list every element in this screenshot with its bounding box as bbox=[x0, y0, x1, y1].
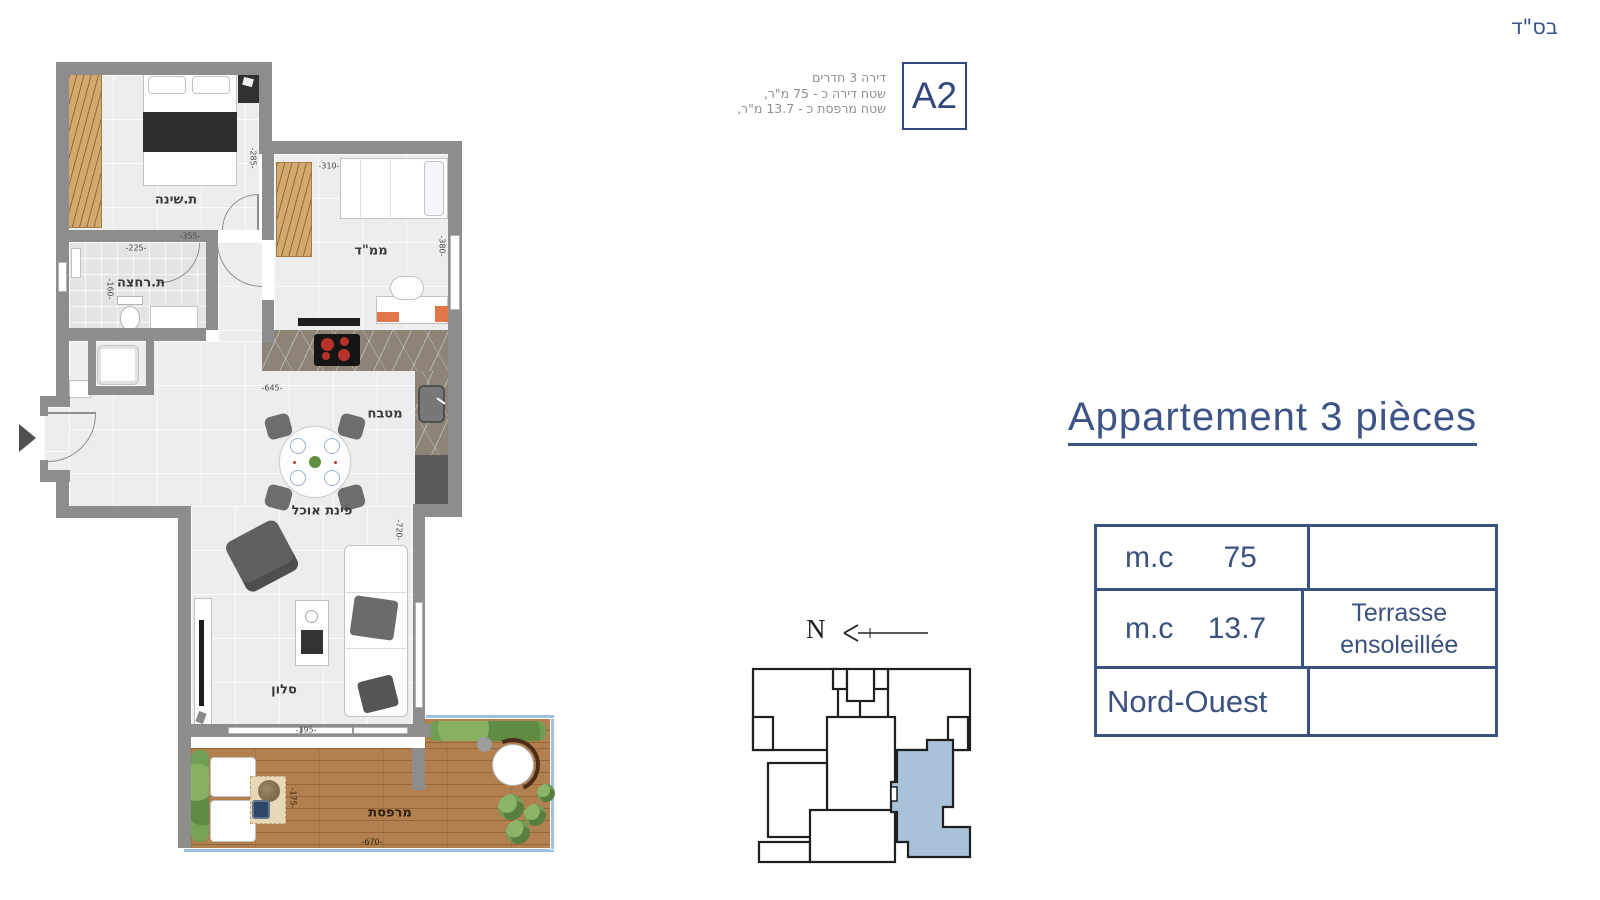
dim-bedroom-h: -285- bbox=[249, 147, 258, 168]
wall bbox=[56, 62, 69, 345]
table-cell-area: m.c 75 bbox=[1097, 527, 1310, 588]
bed-fold-line bbox=[360, 160, 361, 217]
table-row: Nord-Ouest bbox=[1097, 669, 1495, 734]
wall bbox=[448, 343, 462, 504]
window-sliding-door bbox=[228, 727, 408, 734]
table-cell-terrace-note: Terrasse ensoleillée bbox=[1304, 591, 1496, 666]
dim-bath-h: -160- bbox=[106, 278, 115, 299]
room-label-mamad: ממ"ד bbox=[354, 244, 387, 259]
window-tick bbox=[352, 727, 354, 734]
outdoor-stool-icon bbox=[252, 800, 270, 819]
planter-left-icon bbox=[191, 750, 209, 842]
window bbox=[415, 602, 423, 708]
terrace-value: 13.7 bbox=[1173, 612, 1300, 646]
dim-bedroom-w: -355- bbox=[179, 232, 200, 241]
pillow-icon bbox=[424, 161, 444, 216]
sink-icon bbox=[150, 306, 198, 329]
potted-plant-icon bbox=[524, 804, 546, 826]
room-label-bedroom: ת.שינה bbox=[155, 193, 197, 208]
potted-plant-icon bbox=[537, 784, 555, 802]
room-label-bathroom: ת.רחצה bbox=[117, 276, 165, 291]
unit-badge: A2 bbox=[902, 62, 967, 130]
wicker-table-icon bbox=[258, 780, 280, 802]
highlighted-unit bbox=[891, 740, 970, 857]
plate-icon bbox=[324, 470, 340, 486]
plate-icon bbox=[290, 470, 306, 486]
door-leaf bbox=[48, 412, 96, 414]
table-row: m.c 13.7 Terrasse ensoleillée bbox=[1097, 591, 1495, 669]
burner-icon bbox=[340, 337, 349, 346]
blanket-icon bbox=[143, 112, 237, 152]
terrace-railing-right bbox=[550, 717, 555, 850]
dim-mamad-w: -310- bbox=[318, 162, 339, 171]
window bbox=[450, 235, 460, 310]
burner-icon bbox=[338, 349, 350, 361]
area-value: 75 bbox=[1173, 541, 1307, 575]
table-cell-empty bbox=[1310, 669, 1492, 734]
table-cell-note bbox=[1310, 527, 1492, 588]
dim-terrace-h: -175- bbox=[289, 787, 298, 808]
pillow-icon bbox=[192, 76, 230, 94]
unit-badge-label: A2 bbox=[912, 75, 957, 117]
plate-icon bbox=[324, 438, 340, 454]
terrace-railing-bottom bbox=[183, 848, 555, 853]
floor-plan: ת.שינה ת.רחצה ממ"ד מטבח פינת אוכל סלון מ… bbox=[0, 0, 600, 900]
burner-icon bbox=[321, 338, 334, 351]
potted-plant-icon bbox=[498, 794, 524, 820]
shower-shelf bbox=[71, 248, 81, 278]
wall bbox=[56, 506, 191, 518]
spec-table: m.c 75 m.c 13.7 Terrasse ensoleillée Nor… bbox=[1094, 524, 1498, 737]
wall bbox=[88, 341, 96, 391]
dim-mamad-h: -380- bbox=[438, 235, 447, 256]
unit-info-block: דירה 3 חדרים שטח דירה כ - 75 מ"ר, שטח מר… bbox=[690, 70, 886, 117]
door-leaf bbox=[257, 194, 259, 230]
floorplan-sheet: ת.שינה ת.רחצה ממ"ד מטבח פינת אוכל סלון מ… bbox=[0, 0, 1600, 900]
page-title: Appartement 3 pièces bbox=[1068, 395, 1477, 446]
table-bowl-icon bbox=[305, 610, 318, 623]
table-cell-orientation: Nord-Ouest bbox=[1097, 669, 1310, 734]
washing-machine-icon bbox=[97, 345, 139, 385]
unit-info-line: שטח מרפסת כ - 13.7 מ"ר, bbox=[690, 101, 886, 117]
wall bbox=[88, 386, 154, 395]
shelf-icon bbox=[298, 318, 360, 326]
cooktop-icon bbox=[314, 334, 360, 366]
potted-plant-icon bbox=[506, 820, 530, 844]
flower-pot-icon bbox=[477, 737, 492, 752]
bed-fold-line bbox=[390, 160, 391, 217]
dim-living-w: -395- bbox=[295, 726, 316, 735]
wall bbox=[40, 396, 48, 416]
sofa-seam bbox=[346, 648, 406, 649]
plate-icon bbox=[290, 438, 306, 454]
north-arrow-icon bbox=[800, 612, 935, 650]
toilet-icon bbox=[120, 306, 140, 330]
centerpiece-icon bbox=[309, 456, 321, 468]
table-accent bbox=[334, 461, 337, 464]
table-book-icon bbox=[301, 630, 323, 654]
wall bbox=[178, 748, 191, 848]
window bbox=[58, 262, 67, 292]
table-row: m.c 75 bbox=[1097, 527, 1495, 591]
desk-chair-icon bbox=[390, 276, 424, 300]
wall bbox=[146, 341, 154, 391]
north-arrow: N bbox=[800, 612, 935, 650]
building-key-plan bbox=[748, 652, 976, 867]
desk-accent bbox=[435, 306, 448, 322]
sofa-cushion-icon bbox=[349, 595, 398, 641]
wardrobe-icon bbox=[68, 74, 102, 228]
orientation-value: Nord-Ouest bbox=[1107, 684, 1267, 720]
room-label-terrace: מרפסת bbox=[368, 806, 412, 821]
wall bbox=[262, 154, 274, 240]
wall bbox=[206, 242, 218, 330]
terrace-unit: m.c bbox=[1125, 612, 1173, 646]
room-label-kitchen: מטבח bbox=[367, 407, 402, 422]
room-label-dining: פינת אוכל bbox=[292, 504, 353, 519]
wall bbox=[178, 506, 191, 748]
wall bbox=[56, 62, 272, 75]
wall bbox=[56, 328, 206, 341]
dim-terrace-w: -670- bbox=[361, 838, 382, 847]
wardrobe-icon bbox=[276, 162, 312, 257]
bsd-text: בס"ד bbox=[1511, 15, 1558, 39]
sofa-seam bbox=[346, 592, 406, 593]
dim-kitchen-w: -645- bbox=[261, 384, 282, 393]
kitchen-sink-icon bbox=[418, 385, 445, 423]
pillow-icon bbox=[148, 76, 186, 94]
table-cell-terrace-area: m.c 13.7 bbox=[1097, 591, 1304, 666]
wall bbox=[413, 504, 462, 517]
wall bbox=[259, 141, 462, 154]
unit-info-line: דירה 3 חדרים bbox=[690, 70, 886, 86]
terrace-railing-top bbox=[425, 714, 555, 719]
burner-icon bbox=[322, 352, 330, 360]
unit-info-line: שטח דירה כ - 75 מ"ר, bbox=[690, 86, 886, 102]
tv-icon bbox=[199, 620, 204, 706]
toilet-icon bbox=[117, 296, 143, 305]
wall bbox=[56, 345, 69, 403]
entry-arrow-icon bbox=[19, 424, 36, 452]
room-label-living: סלון bbox=[271, 683, 297, 698]
wall bbox=[412, 748, 425, 790]
area-unit: m.c bbox=[1125, 541, 1173, 575]
desk-accent bbox=[377, 312, 399, 322]
dim-living-h: -720- bbox=[395, 519, 404, 540]
nightstand-icon bbox=[238, 71, 259, 103]
table-accent bbox=[293, 461, 296, 464]
dim-bath-w: -225- bbox=[125, 244, 146, 253]
wall bbox=[262, 300, 274, 343]
